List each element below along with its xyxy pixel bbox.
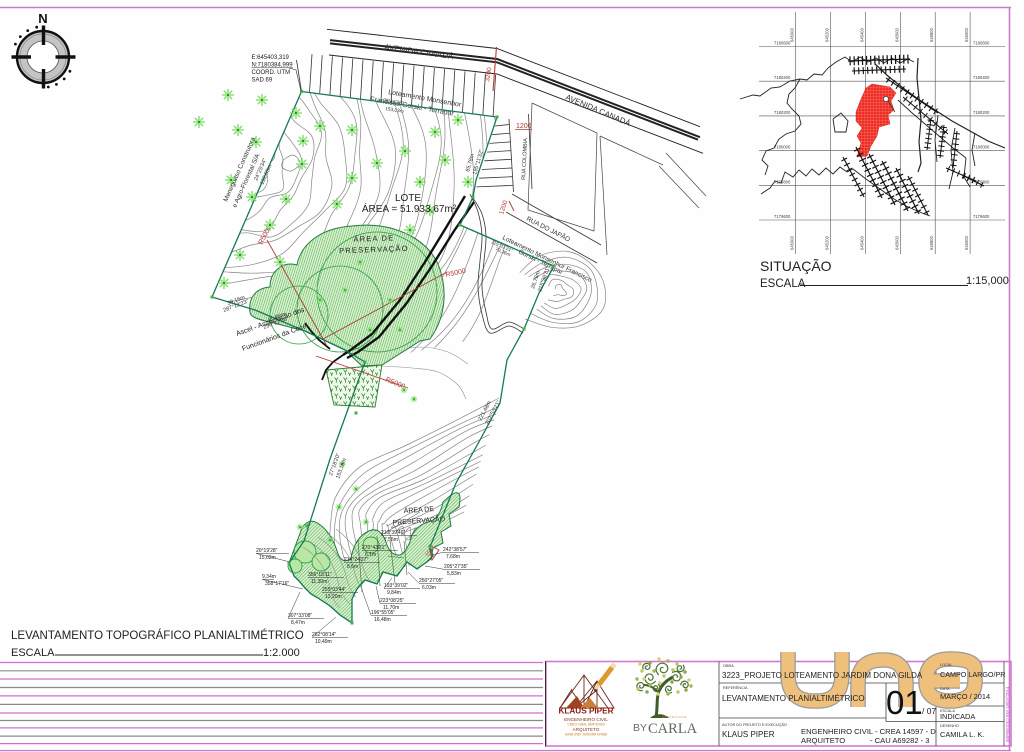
svg-text:REFERÊNCIA: REFERÊNCIA [723,685,748,690]
svg-text:LOTE: LOTE [395,193,421,204]
svg-text:CARLA: CARLA [648,721,698,737]
svg-text:COORD. UTM: COORD. UTM [252,70,291,76]
svg-text:358°17'16": 358°17'16" [265,581,289,587]
svg-text:CAMPO LARGO/PR: CAMPO LARGO/PR [940,670,1006,679]
svg-text:645200: 645200 [825,235,830,250]
svg-text:7180000: 7180000 [774,145,791,150]
svg-text:646000: 646000 [964,27,969,42]
svg-text:ENGENHEIRO CIVIL - CREA 14597: ENGENHEIRO CIVIL - CREA 14597 - D [801,727,936,736]
svg-text:645400: 645400 [859,27,864,42]
svg-text:7180200: 7180200 [973,110,990,115]
svg-text:LOCAL: LOCAL [940,663,952,667]
svg-text:KLAUS PIPER: KLAUS PIPER [558,707,613,716]
svg-text:7180000: 7180000 [973,145,990,150]
svg-text:ESCALA: ESCALA [760,278,806,290]
svg-text:7,68m: 7,68m [446,554,460,560]
svg-text:E S T U D I O J O I E: E S T U D I O J O I E [662,715,687,719]
svg-text:DESENHO: DESENHO [940,724,959,728]
svg-text:645600: 645600 [894,235,899,250]
svg-text:10,49m: 10,49m [315,639,332,645]
svg-text:8,47m: 8,47m [291,620,305,626]
svg-text:645200: 645200 [825,27,830,42]
svg-text:01: 01 [886,684,923,721]
svg-text:OBRA: OBRA [723,664,734,668]
svg-text:11,30m: 11,30m [311,579,327,585]
svg-text:16,48m: 16,48m [374,617,391,623]
svg-text:N: N [38,11,47,26]
svg-text:645800: 645800 [929,235,934,250]
svg-text:CAMILA L. K.: CAMILA L. K. [940,730,984,739]
svg-text:SAD 69: SAD 69 [252,78,273,84]
svg-text:ARQUITETO: ARQUITETO [801,736,845,745]
svg-text:UASB 6987 JUNIOR8 4J4560: UASB 6987 JUNIOR8 4J4560 [565,733,608,737]
svg-text:7180600: 7180600 [973,41,990,46]
svg-text:/ 07: / 07 [922,706,936,716]
svg-text:AUTOR DO PROJETO E EXECUÇÃO: AUTOR DO PROJETO E EXECUÇÃO [722,722,787,727]
svg-text:6,03m: 6,03m [422,585,436,591]
svg-text:INDICADA: INDICADA [940,712,975,721]
svg-text:ÁREA = 51.933,67m²: ÁREA = 51.933,67m² [362,202,457,215]
svg-text:645400: 645400 [859,235,864,250]
svg-text:ENGENHEIRO CIVIL: ENGENHEIRO CIVIL [564,717,608,722]
svg-text:7180400: 7180400 [973,75,990,80]
svg-text:- CAU A69282 - 3: - CAU A69282 - 3 [870,736,930,745]
svg-text:645000: 645000 [790,235,795,250]
svg-text:LEVANTAMENTO TOPOGRÁFICO PLAN: LEVANTAMENTO TOPOGRÁFICO PLANIALTIMÉTRIC… [11,629,304,642]
svg-text:13,20m: 13,20m [325,594,342,600]
svg-text:BY: BY [633,722,647,734]
svg-text:6,1m: 6,1m [365,552,376,558]
svg-text:1200: 1200 [516,123,532,130]
svg-text:E:645403,319: E:645403,319 [252,55,290,61]
svg-text:645000: 645000 [790,27,795,42]
svg-text:645800: 645800 [929,27,934,42]
svg-text:1:2.000: 1:2.000 [263,647,300,659]
svg-text:15,02m: 15,02m [259,555,276,561]
svg-text:3223_PROJETO LOTEAMENTO JARDIM: 3223_PROJETO LOTEAMENTO JARDIM DONA GILD… [722,671,923,680]
svg-text:MARÇO / 2014: MARÇO / 2014 [940,692,990,701]
svg-text:KLAUS PIPER: KLAUS PIPER [722,730,775,739]
svg-text:ESCALA: ESCALA [11,647,55,659]
svg-text:9,84m: 9,84m [387,590,401,596]
svg-text:8,6m: 8,6m [347,564,358,570]
svg-text:IMPRESSO EM 18/07/2014: IMPRESSO EM 18/07/2014 [1005,686,1010,742]
svg-text:DATA: DATA [940,687,950,691]
svg-text:ARQUITETO: ARQUITETO [573,727,600,732]
svg-text:7,55m: 7,55m [384,537,398,543]
svg-text:7180400: 7180400 [774,75,791,80]
svg-text:645600: 645600 [894,27,899,42]
svg-text:7179600: 7179600 [973,214,990,219]
svg-text:7180200: 7180200 [774,110,791,115]
svg-text:1:15,000: 1:15,000 [966,275,1009,287]
svg-text:CRECI ONAL HMP 81060: CRECI ONAL HMP 81060 [567,723,604,727]
svg-text:SITUAÇÃO: SITUAÇÃO [760,258,832,274]
svg-text:LEVANTAMENTO PLANIALTIMÉTRICO: LEVANTAMENTO PLANIALTIMÉTRICO [722,694,865,703]
svg-text:5,83m: 5,83m [447,571,461,577]
svg-text:ÁREA DE: ÁREA DE [353,233,394,243]
svg-text:7179600: 7179600 [774,214,791,219]
svg-text:7180600: 7180600 [774,41,791,46]
svg-text:646000: 646000 [964,235,969,250]
